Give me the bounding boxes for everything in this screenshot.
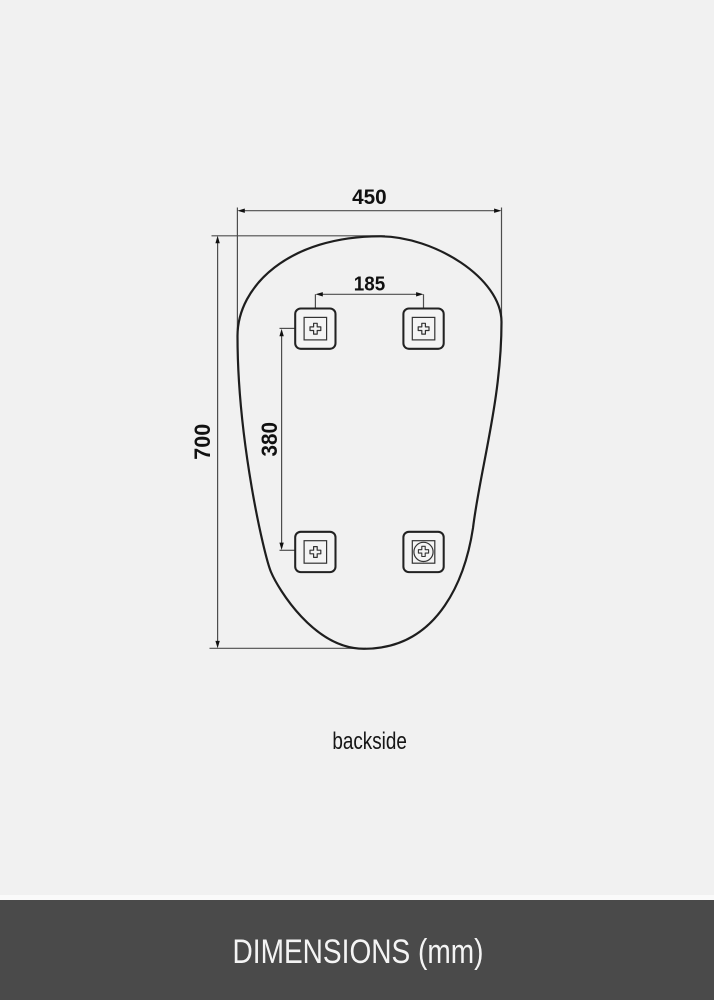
svg-text:185: 185 (354, 273, 386, 295)
svg-text:backside: backside (332, 728, 407, 755)
svg-text:380: 380 (257, 422, 282, 457)
svg-text:DIMENSIONS (mm): DIMENSIONS (mm) (233, 933, 484, 971)
svg-text:700: 700 (190, 424, 215, 460)
svg-text:450: 450 (352, 185, 387, 209)
